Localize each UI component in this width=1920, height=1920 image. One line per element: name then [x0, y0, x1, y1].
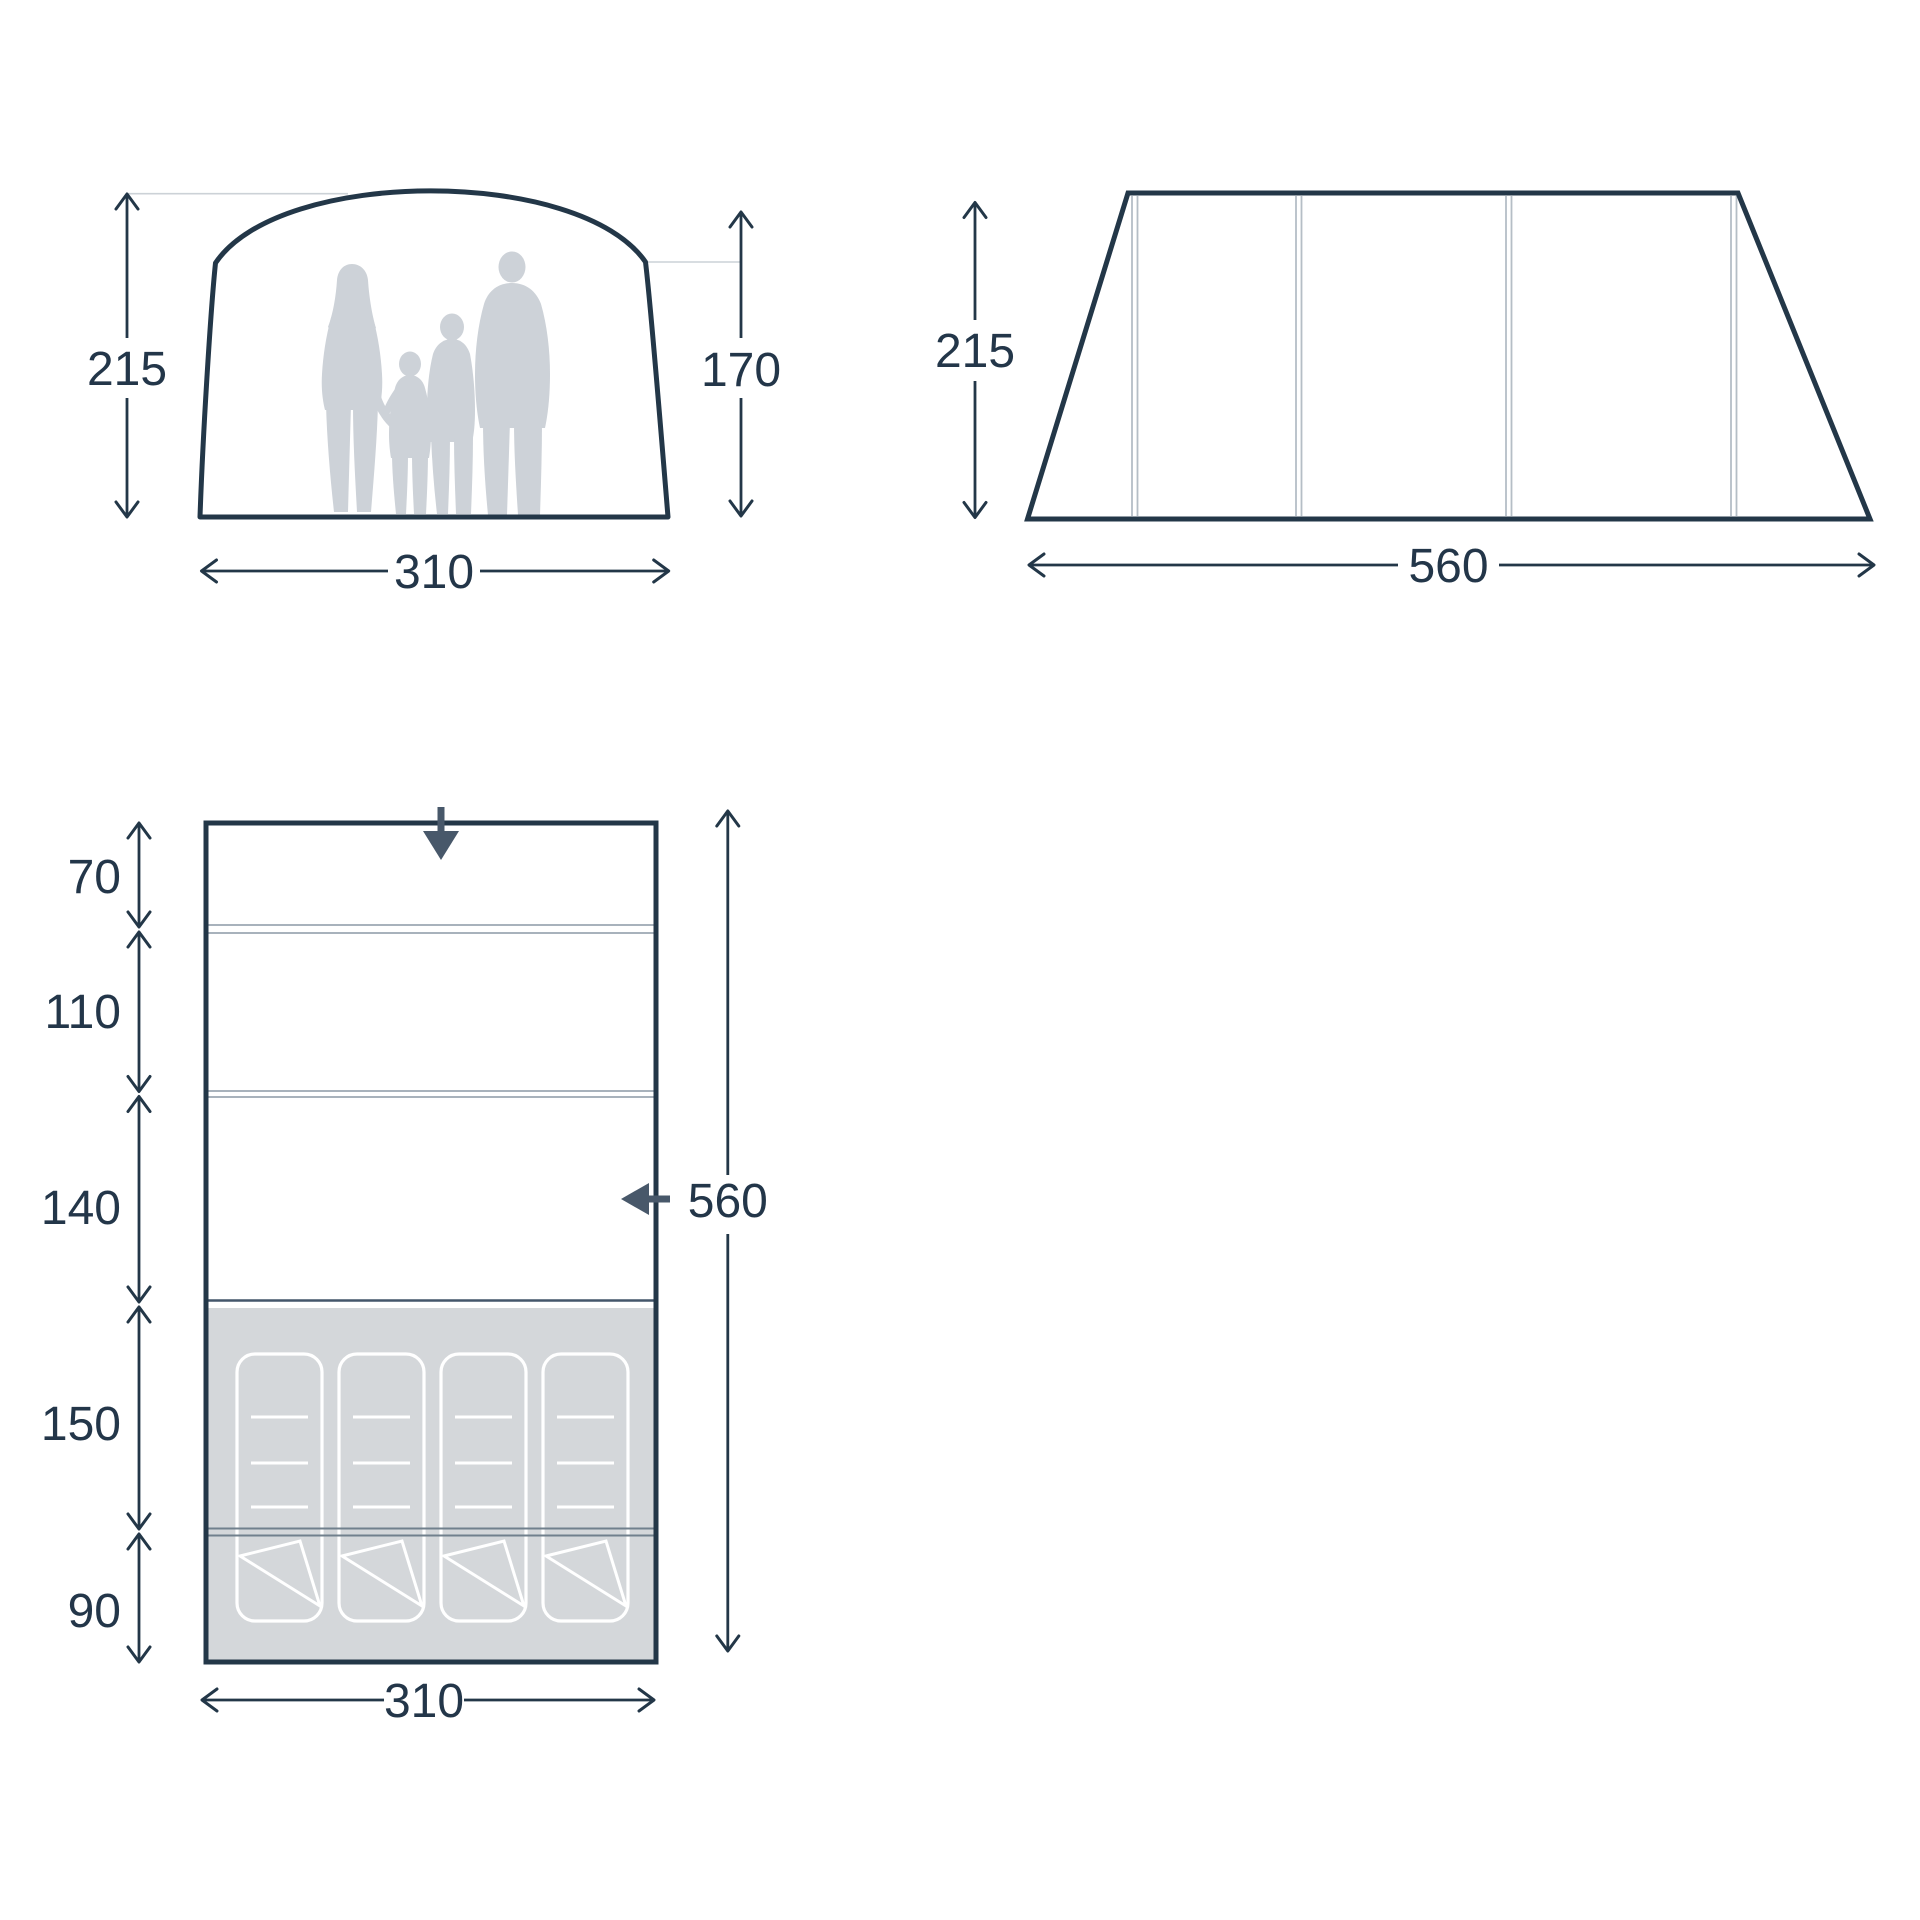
svg-text:90: 90: [68, 1585, 121, 1638]
svg-text:560: 560: [1408, 540, 1488, 593]
svg-text:310: 310: [394, 546, 474, 599]
svg-text:70: 70: [68, 851, 121, 904]
svg-text:150: 150: [41, 1398, 121, 1451]
svg-text:170: 170: [701, 344, 781, 397]
svg-text:110: 110: [44, 986, 121, 1039]
svg-text:215: 215: [935, 325, 1015, 378]
svg-text:310: 310: [384, 1675, 464, 1728]
svg-text:560: 560: [688, 1175, 768, 1228]
svg-text:140: 140: [41, 1182, 121, 1235]
svg-text:215: 215: [87, 343, 167, 396]
